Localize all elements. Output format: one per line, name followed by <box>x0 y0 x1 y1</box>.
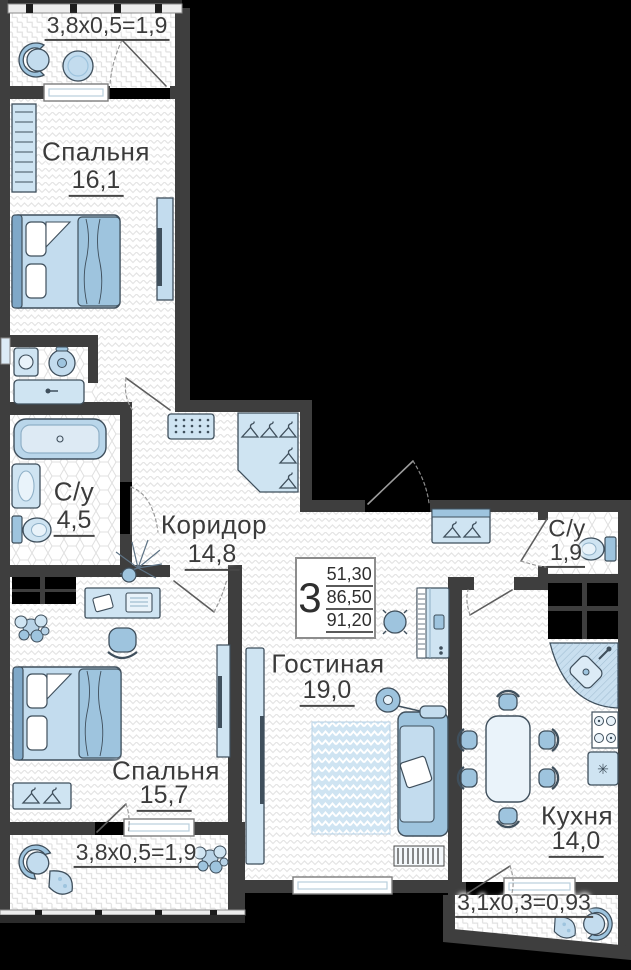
shoe-cabinet-icon <box>168 414 214 439</box>
bathroom-2-name: С/у <box>548 516 586 541</box>
bathtub-icon <box>14 419 106 459</box>
door-entry <box>368 461 429 504</box>
bathroom-2-area: 1,9 <box>547 540 585 568</box>
living-area-total: 51,30 <box>326 564 373 587</box>
radiator-icon <box>1 338 10 364</box>
bed-icon <box>12 215 120 308</box>
bedroom-1-name: Спальня <box>42 138 150 165</box>
living-name: Гостиная <box>271 650 384 677</box>
bathroom-1-name: С/у <box>54 478 95 505</box>
bedroom-2-area: 15,7 <box>137 782 192 812</box>
corridor-area: 14,8 <box>185 541 240 571</box>
bathroom-1-area: 4,5 <box>54 507 95 537</box>
apartment-summary-box: 3 51,30 86,50 91,20 <box>295 557 376 639</box>
tv-icon <box>217 645 230 757</box>
sink-icon <box>12 464 40 508</box>
bedroom-1-area: 16,1 <box>69 167 124 197</box>
balcony-top-label: 3,8x0,5=1,9 <box>45 13 170 41</box>
sofa-icon <box>398 712 448 836</box>
toilet-icon <box>12 516 51 543</box>
desk-icon <box>85 588 160 618</box>
vanity-icon <box>14 380 84 404</box>
bed-icon <box>13 667 121 760</box>
tv-unit-icon <box>246 648 264 864</box>
window-balcony-top-divider <box>44 84 108 101</box>
coffee-table-icon <box>63 51 93 81</box>
piano-icon <box>417 588 449 658</box>
apartment-area: 86,50 <box>326 587 373 610</box>
tv-unit-icon <box>157 198 173 300</box>
floor-plan: ✳ 3,8x0,5=1,9 Спальня 16,1 С/у 4,5 Корид… <box>0 0 631 970</box>
balcony-br-label: 3,1x0,3=0,93 <box>455 890 593 918</box>
coat-rack-icon <box>432 509 490 543</box>
corridor-name: Коридор <box>161 511 267 538</box>
radiator-grille-icon <box>394 846 444 866</box>
rug <box>312 722 390 834</box>
wardrobe-hangers-icon <box>13 783 71 809</box>
total-area: 91,20 <box>326 610 373 633</box>
living-area: 19,0 <box>300 677 355 707</box>
window-bedroom-2 <box>124 819 194 836</box>
fridge-icon: ✳ <box>588 752 618 785</box>
kitchen-name: Кухня <box>541 802 613 829</box>
stove-icon <box>592 712 618 748</box>
kitchen-area: 14,0 <box>549 828 604 858</box>
balcony-bl-label: 3,8x0,5=1,9 <box>74 840 199 868</box>
window-living <box>293 877 392 894</box>
wardrobe-icon <box>12 104 36 192</box>
washer-icon <box>14 348 38 376</box>
svg-text:✳: ✳ <box>597 761 609 777</box>
rooms-count: 3 <box>298 574 321 622</box>
